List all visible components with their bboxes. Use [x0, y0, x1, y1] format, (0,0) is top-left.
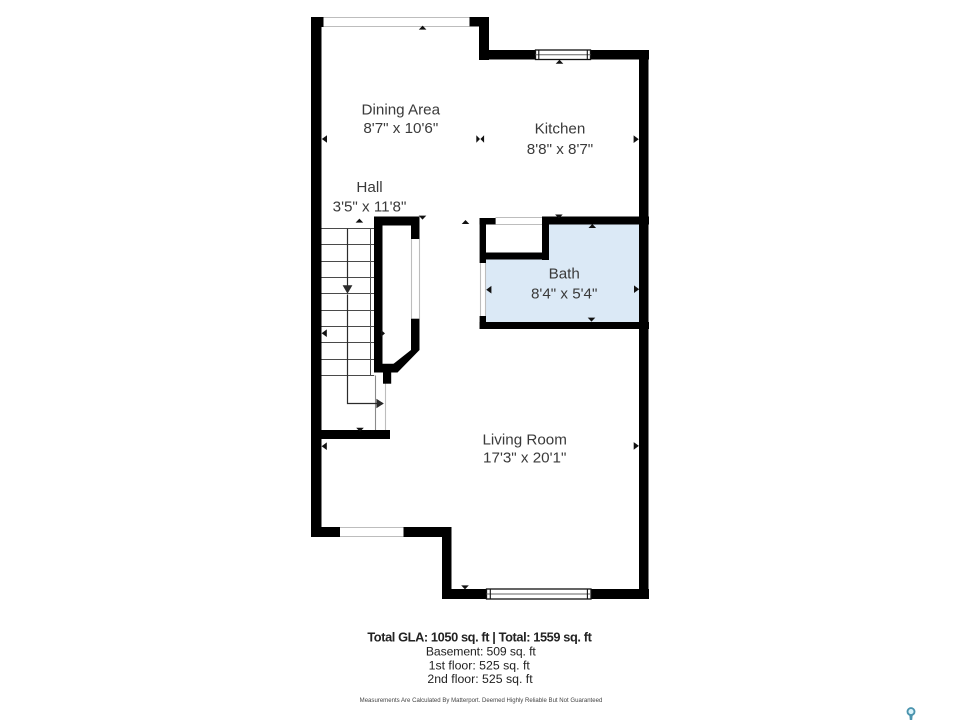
- svg-text:Kitchen: Kitchen: [535, 121, 586, 138]
- svg-text:Bath: Bath: [549, 265, 580, 282]
- svg-text:Hall: Hall: [356, 179, 382, 196]
- svg-text:Basement: 509 sq. ft: Basement: 509 sq. ft: [426, 645, 536, 659]
- svg-text:3'5" x 11'8": 3'5" x 11'8": [333, 199, 407, 216]
- svg-text:8'8" x 8'7": 8'8" x 8'7": [527, 141, 593, 158]
- svg-text:2nd floor: 525 sq. ft: 2nd floor: 525 sq. ft: [427, 672, 533, 686]
- svg-text:Total GLA: 1050 sq. ft | Total: Total GLA: 1050 sq. ft | Total: 1559 sq.…: [367, 629, 592, 644]
- svg-text:8'4" x 5'4": 8'4" x 5'4": [531, 285, 597, 302]
- svg-text:1st floor: 525 sq. ft: 1st floor: 525 sq. ft: [429, 659, 531, 673]
- svg-text:Dining Area: Dining Area: [362, 102, 441, 119]
- svg-text:Living Room: Living Room: [482, 431, 566, 448]
- svg-text:8'7" x 10'6": 8'7" x 10'6": [363, 120, 438, 137]
- svg-text:Measurements Are Calculated By: Measurements Are Calculated By Matterpor…: [360, 698, 603, 704]
- svg-text:17'3" x 20'1": 17'3" x 20'1": [483, 450, 566, 467]
